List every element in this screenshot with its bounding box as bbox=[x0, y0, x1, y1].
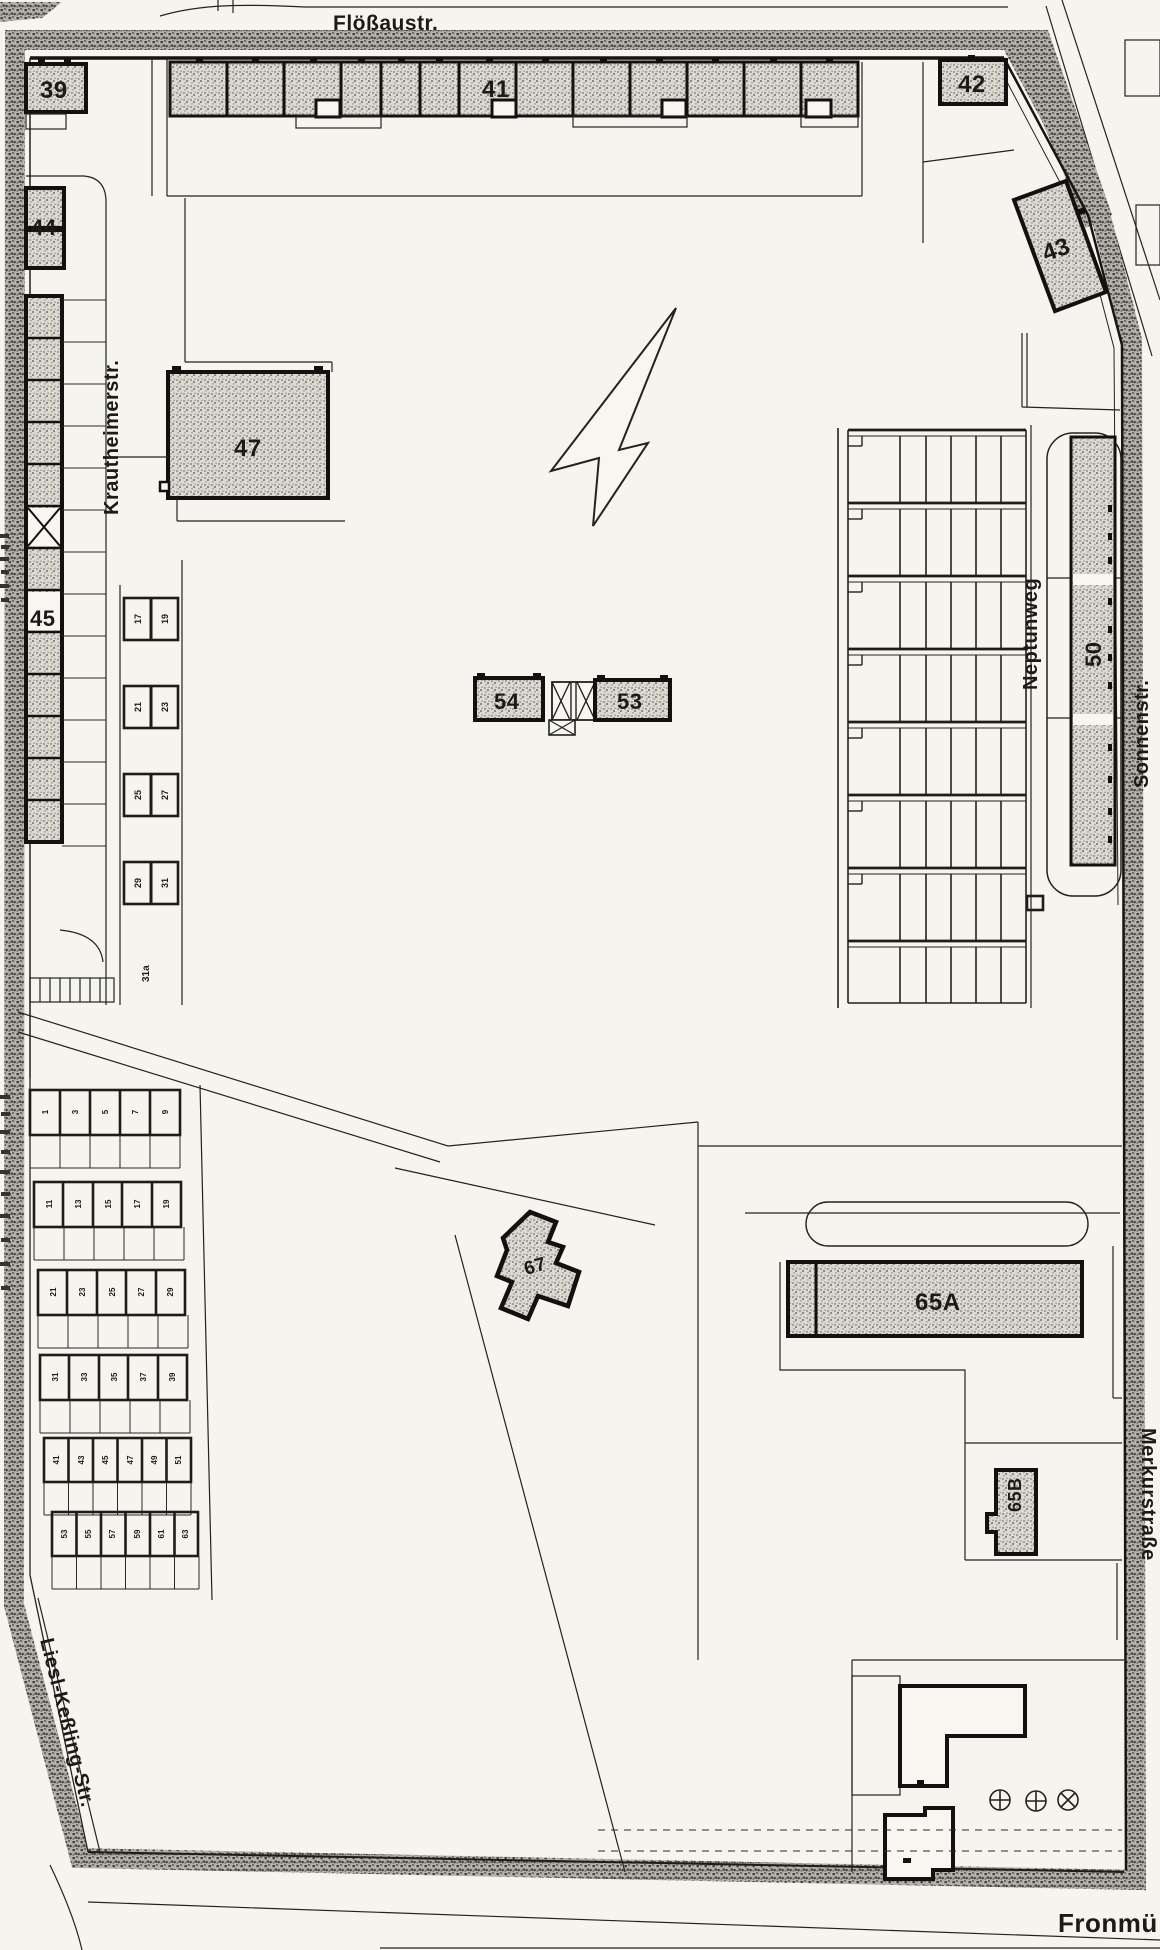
garage-number: 21 bbox=[49, 1287, 58, 1296]
entrance-nub bbox=[160, 482, 169, 491]
garage-number: 17 bbox=[133, 1199, 142, 1208]
roof-tick bbox=[968, 55, 975, 61]
garage-number: 17 bbox=[133, 614, 143, 624]
garage-number: 55 bbox=[84, 1529, 93, 1538]
garage-number: 47 bbox=[126, 1455, 135, 1464]
garage-number: 53 bbox=[60, 1529, 69, 1538]
garage-number: 19 bbox=[160, 614, 170, 624]
street-label-neptunweg: Neptunweg bbox=[1020, 578, 1042, 690]
garage-number: 33 bbox=[80, 1372, 89, 1381]
building-42-label: 42 bbox=[958, 71, 986, 98]
building-65b-label: 65B bbox=[1005, 1477, 1025, 1512]
building-65a-label: 65A bbox=[915, 1289, 961, 1316]
garage-number: 1 bbox=[41, 1109, 50, 1114]
garage-number: 3 bbox=[71, 1109, 80, 1114]
building-50-label: 50 bbox=[1081, 642, 1106, 667]
connector bbox=[552, 682, 595, 720]
garage-number: 37 bbox=[139, 1372, 148, 1381]
garage-number: 59 bbox=[133, 1529, 142, 1538]
garage-number: 57 bbox=[108, 1529, 117, 1538]
garage-number: 27 bbox=[160, 790, 170, 800]
garage-number: 25 bbox=[108, 1287, 117, 1296]
garage-number: 41 bbox=[52, 1455, 61, 1464]
site-plan: Flößaustr. 39 41 42 bbox=[0, 0, 1160, 1950]
building-54-label: 54 bbox=[494, 689, 520, 714]
building-39-label: 39 bbox=[40, 77, 68, 104]
garage-number: 35 bbox=[110, 1372, 119, 1381]
garage-number: 31 bbox=[160, 878, 170, 888]
street-label-fronmuellerstr: Fronmü bbox=[1058, 1908, 1158, 1938]
garage-number: 45 bbox=[101, 1455, 110, 1464]
garage-number: 39 bbox=[168, 1372, 177, 1381]
street-label-flossaustr: Flößaustr. bbox=[333, 12, 438, 35]
garage-number: 49 bbox=[150, 1455, 159, 1464]
garage-number: 7 bbox=[131, 1109, 140, 1114]
street-label-merkurstrasse: Merkurstraße bbox=[1137, 1428, 1159, 1561]
street-label-sonnenstr: Sonnenstr. bbox=[1131, 680, 1153, 788]
garage-number: 23 bbox=[160, 702, 170, 712]
roof-tick bbox=[38, 59, 45, 65]
garage-number: 31 bbox=[51, 1372, 60, 1381]
building-44-label: 44 bbox=[31, 215, 57, 240]
roof-tick bbox=[314, 366, 323, 373]
garage-number: 63 bbox=[181, 1529, 190, 1538]
building-42: 42 bbox=[940, 55, 1006, 104]
garage-number: 51 bbox=[174, 1455, 183, 1464]
garage-number: 61 bbox=[157, 1529, 166, 1538]
site-plan-canvas: Flößaustr. 39 41 42 bbox=[0, 0, 1160, 1950]
garage-number: 5 bbox=[101, 1109, 110, 1114]
building-47-label: 47 bbox=[234, 435, 262, 462]
garage-number: 29 bbox=[166, 1287, 175, 1296]
garage-number: 29 bbox=[133, 878, 143, 888]
street-label-krautheimerstr: Krautheimerstr. bbox=[101, 360, 123, 515]
small-building bbox=[885, 1808, 953, 1879]
annotation-31a: 31a bbox=[141, 965, 152, 982]
roof-tick bbox=[172, 366, 181, 373]
building-41-label: 41 bbox=[482, 76, 510, 103]
garage-number: 11 bbox=[45, 1199, 54, 1208]
roof-tick bbox=[64, 59, 71, 65]
building-45-label: 45 bbox=[30, 606, 55, 631]
building-53-label: 53 bbox=[617, 689, 642, 714]
garage-number: 9 bbox=[161, 1109, 170, 1114]
garage-number: 21 bbox=[133, 702, 143, 712]
garage-number: 23 bbox=[78, 1287, 87, 1296]
garage-number: 19 bbox=[162, 1199, 171, 1208]
garage-number: 43 bbox=[77, 1455, 86, 1464]
garage-number: 13 bbox=[74, 1199, 83, 1208]
paper-background bbox=[0, 0, 1160, 1950]
garage-number: 27 bbox=[137, 1287, 146, 1296]
building-41-row: 41 bbox=[170, 58, 858, 128]
garage-number: 15 bbox=[104, 1199, 113, 1208]
garage-number: 25 bbox=[133, 790, 143, 800]
